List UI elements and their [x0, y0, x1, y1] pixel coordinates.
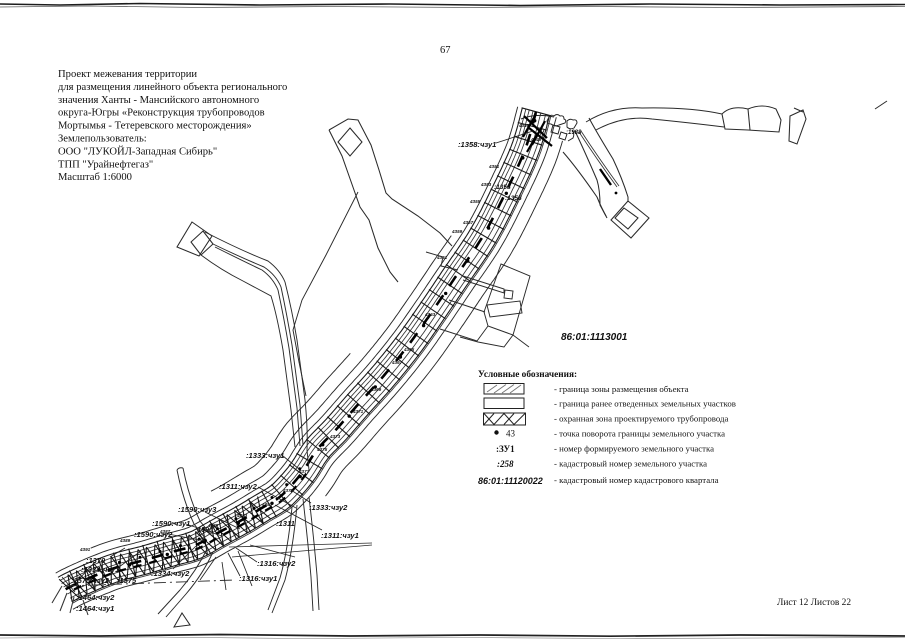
- svg-text::1590:чзу2: :1590:чзу2: [134, 530, 173, 539]
- svg-text::1590:чзу1: :1590:чзу1: [152, 519, 190, 528]
- svg-text:- охранная зона проектируемого: - охранная зона проектируемого трубопров…: [554, 414, 728, 424]
- svg-text::ЗУ1: :ЗУ1: [496, 444, 515, 454]
- svg-text::1988: :1988: [566, 130, 582, 136]
- svg-text:86:01:11120022: 86:01:11120022: [478, 476, 543, 486]
- svg-text::1311: :1311: [276, 519, 295, 528]
- svg-text:ООО "ЛУКОЙЛ-Западная Сибирь": ООО "ЛУКОЙЛ-Западная Сибирь": [58, 145, 217, 157]
- svg-text:4359: 4359: [451, 229, 463, 234]
- svg-text:округа-Югры «Реконструкция тру: округа-Югры «Реконструкция трубопроводов: [58, 108, 265, 119]
- svg-text::1575:чзу2: :1575:чзу2: [71, 576, 110, 585]
- svg-text:4367: 4367: [391, 360, 403, 365]
- svg-text::1358:чзу1: :1358:чзу1: [458, 140, 496, 149]
- svg-text:Условные обозначения:: Условные обозначения:: [478, 369, 577, 380]
- svg-text::1311:чзу1: :1311:чзу1: [321, 531, 359, 540]
- svg-text:86:01:1113001: 86:01:1113001: [561, 332, 628, 343]
- svg-text:- номер формируемого земельног: - номер формируемого земельного участка: [554, 444, 714, 454]
- svg-text::1370: :1370: [86, 556, 106, 565]
- svg-text:43: 43: [506, 429, 516, 439]
- svg-text:Лист 12 Листов 22: Лист 12 Листов 22: [777, 598, 851, 608]
- svg-text:4383: 4383: [236, 513, 248, 518]
- svg-text::1334:чзу2: :1334:чзу2: [151, 569, 190, 578]
- svg-text:- точка поворота границы земел: - точка поворота границы земельного учас…: [554, 429, 725, 439]
- svg-text:4389: 4389: [119, 538, 131, 543]
- svg-text:4369: 4369: [370, 387, 382, 392]
- svg-text::1316:чзу2: :1316:чзу2: [257, 559, 296, 568]
- svg-text:- кадастровый номер кадастрово: - кадастровый номер кадастрового квартал…: [554, 475, 719, 485]
- svg-text:4377: 4377: [298, 469, 310, 474]
- svg-text:4357: 4357: [462, 220, 474, 225]
- svg-text:4353: 4353: [480, 182, 492, 187]
- svg-text:для размещения линейного объек: для размещения линейного объекта региона…: [58, 82, 287, 93]
- svg-text:4365: 4365: [403, 347, 415, 352]
- svg-text::1316:чзу1: :1316:чзу1: [239, 574, 277, 583]
- svg-text:Землепользователь:: Землепользователь:: [58, 134, 147, 145]
- svg-text::1358: :1358: [505, 195, 522, 202]
- svg-text:Масштаб 1:6000: Масштаб 1:6000: [58, 172, 132, 183]
- svg-text::1575: :1575: [117, 576, 137, 585]
- svg-text::1590: :1590: [195, 527, 213, 534]
- svg-text:4351: 4351: [488, 164, 500, 169]
- svg-text::1333:чзу2: :1333:чзу2: [309, 503, 348, 512]
- svg-text:- кадастровый номер земельного: - кадастровый номер земельного участка: [554, 459, 707, 469]
- svg-text:Проект межевания территории: Проект межевания территории: [58, 69, 197, 80]
- svg-text::1464:чзу1: :1464:чзу1: [76, 604, 114, 613]
- svg-text:4355: 4355: [469, 199, 481, 204]
- svg-text:- граница зоны размещения объе: - граница зоны размещения объекта: [554, 384, 689, 394]
- svg-text:Мортымья - Тетеревского местор: Мортымья - Тетеревского месторождения»: [58, 121, 252, 132]
- svg-text:4373: 4373: [329, 434, 341, 439]
- svg-text:4381: 4381: [261, 502, 273, 507]
- svg-text:- граница ранее отведенных зем: - граница ранее отведенных земельных уча…: [554, 399, 736, 409]
- svg-text:ТПП "Урайнефтегаз": ТПП "Урайнефтегаз": [58, 159, 153, 170]
- svg-text::1311:чзу2: :1311:чзу2: [219, 482, 258, 491]
- svg-text::1358: :1358: [494, 184, 511, 191]
- svg-text:значения Ханты - Мансийского а: значения Ханты - Мансийского автономного: [58, 95, 259, 106]
- svg-text::1590:чзу3: :1590:чзу3: [178, 505, 217, 514]
- svg-text::1464:чзу2: :1464:чзу2: [76, 593, 115, 602]
- svg-text::1333:чзу1: :1333:чзу1: [246, 451, 284, 460]
- svg-text:4371: 4371: [352, 409, 364, 414]
- svg-text:4363: 4363: [424, 312, 436, 317]
- svg-text::1334:чзу1: :1334:чзу1: [81, 565, 119, 574]
- svg-text:4375: 4375: [316, 447, 328, 452]
- svg-text:67: 67: [440, 45, 451, 56]
- svg-text:4391: 4391: [79, 547, 91, 552]
- svg-text::258: :258: [497, 459, 514, 469]
